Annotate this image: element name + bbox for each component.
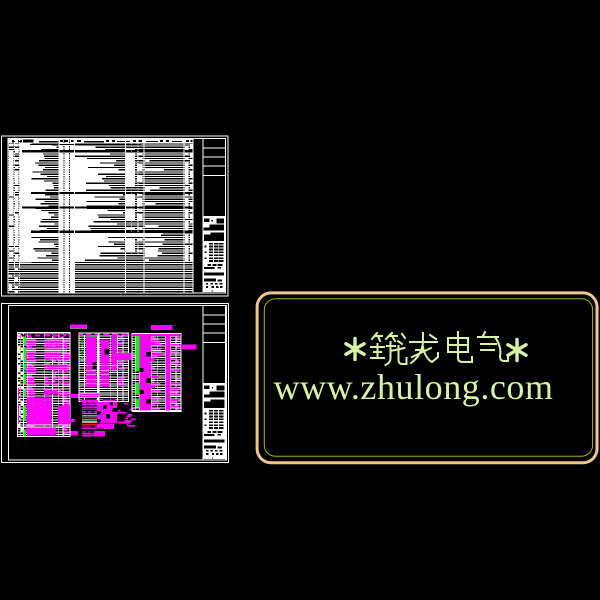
svg-text:www.zhulong.com: www.zhulong.com bbox=[274, 367, 554, 407]
